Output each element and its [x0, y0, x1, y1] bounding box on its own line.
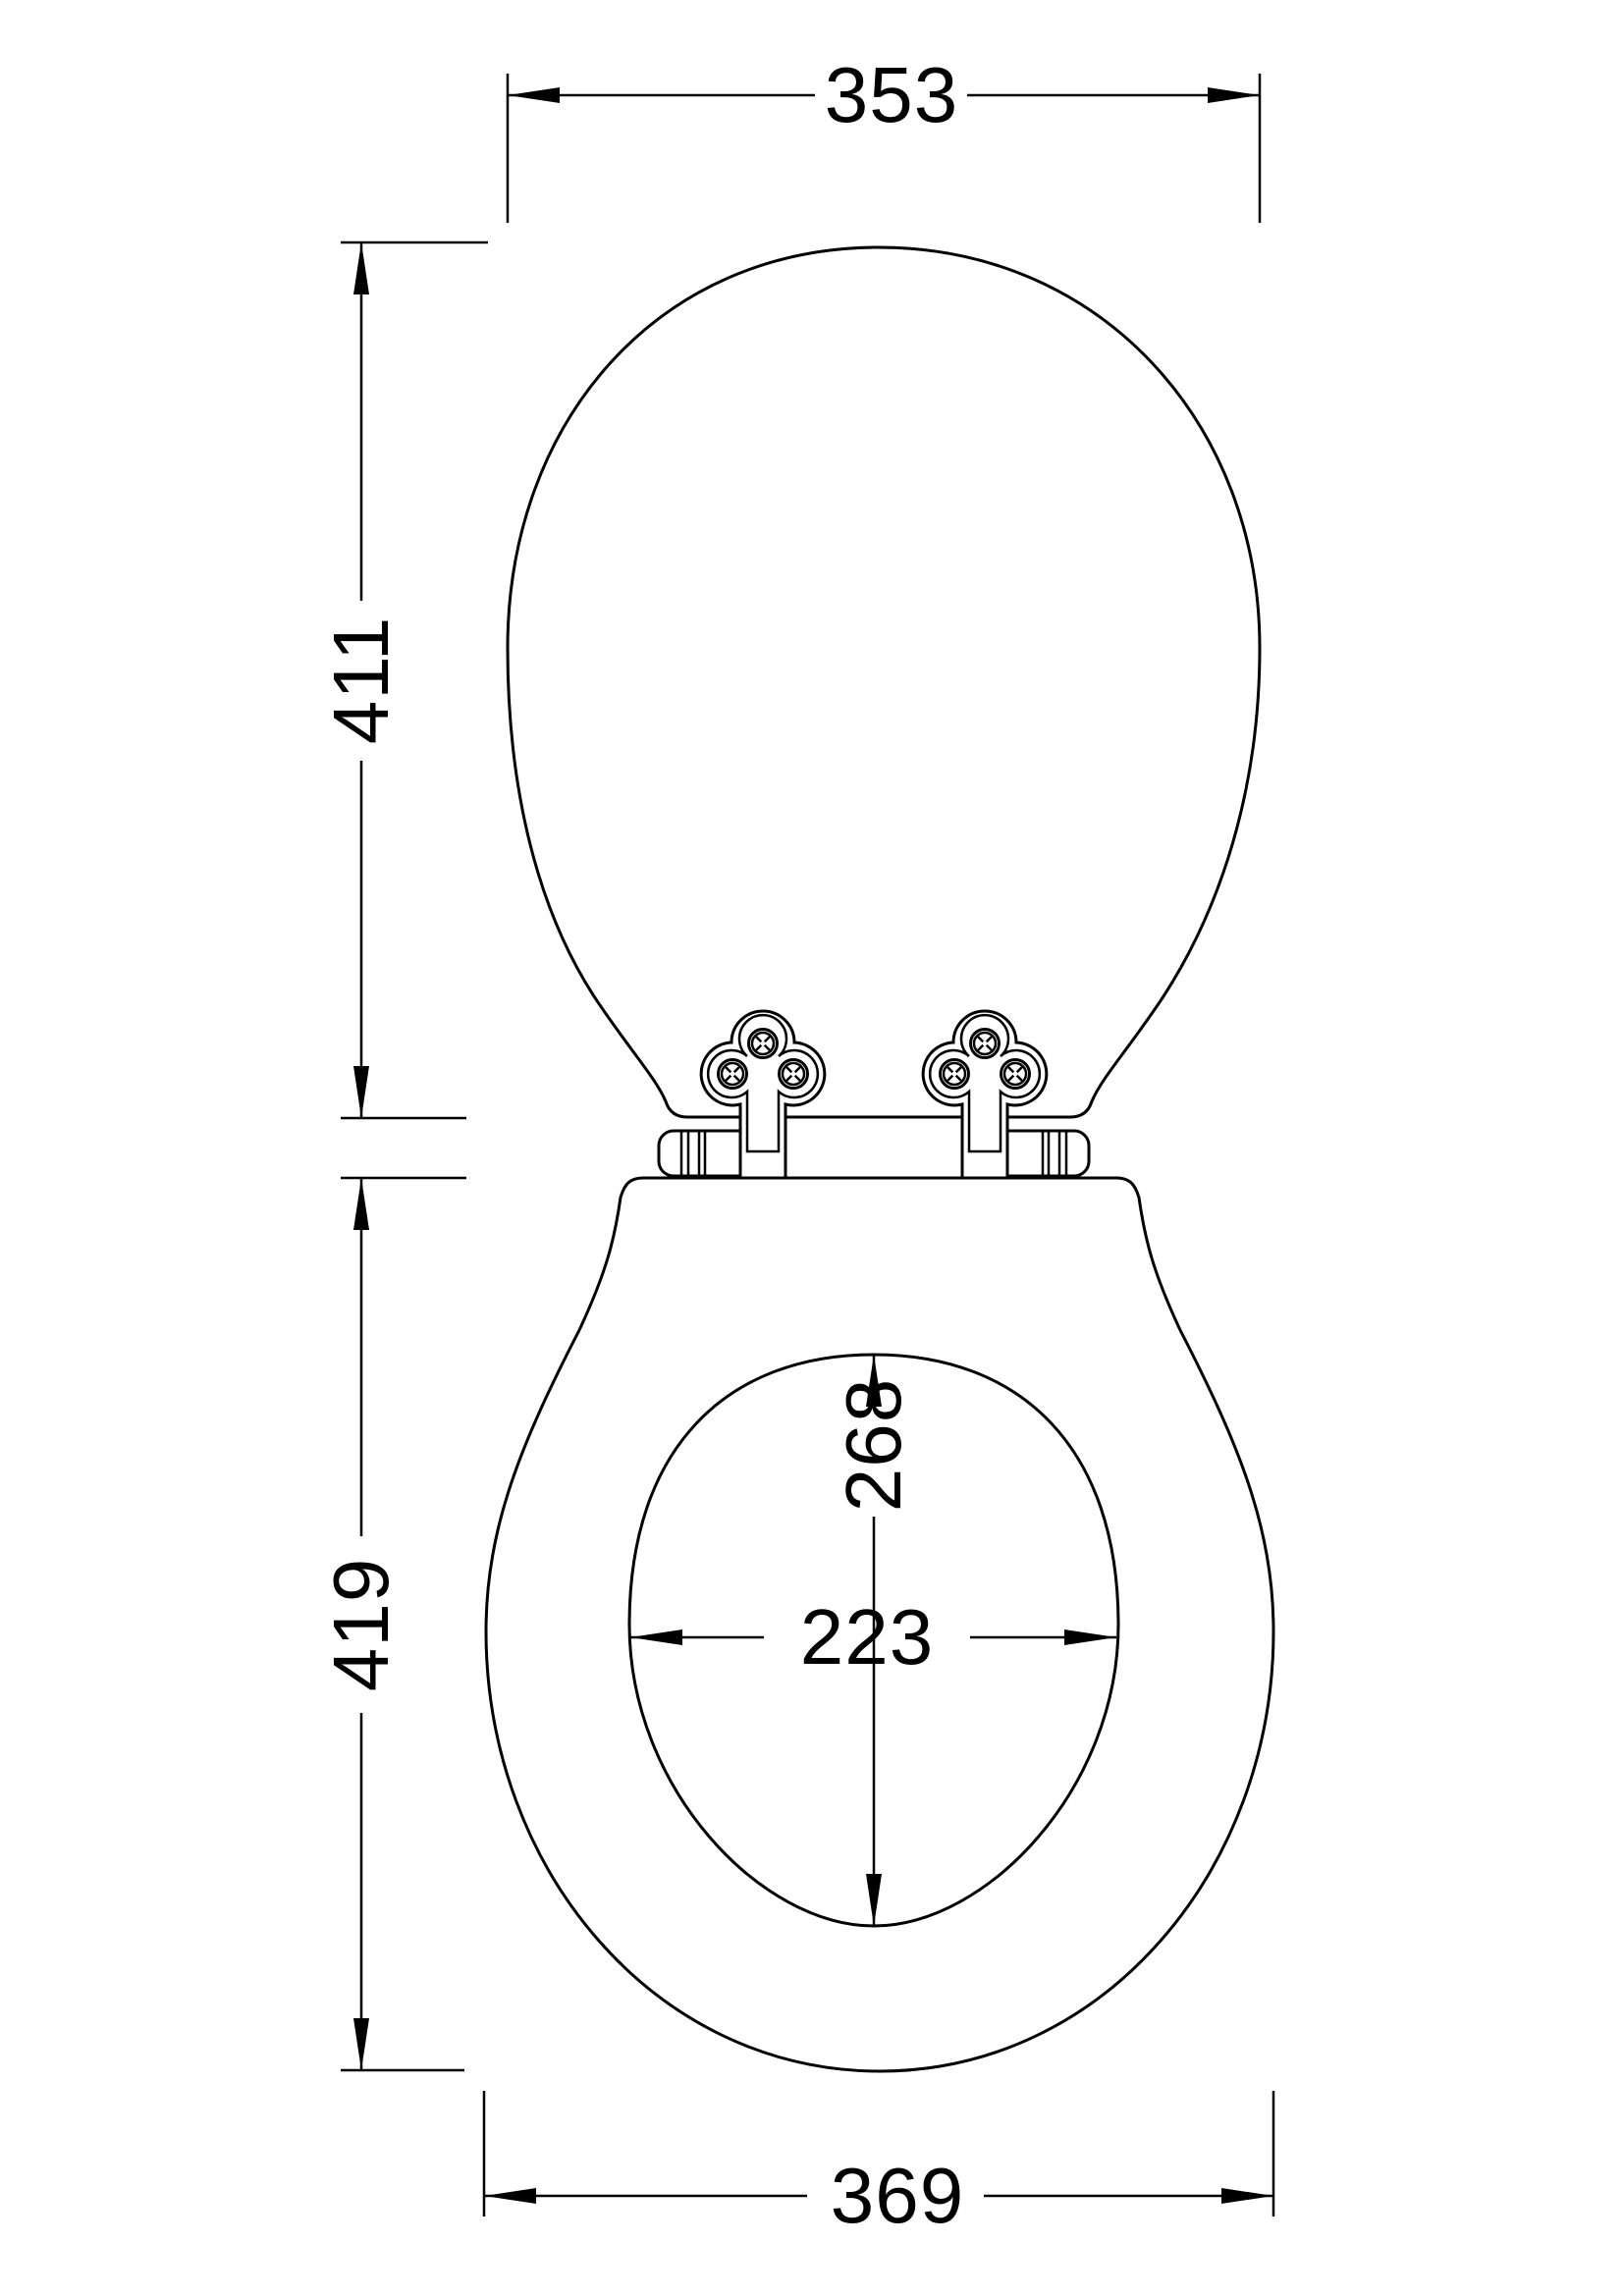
- dimension-label-seat-width: 369: [831, 2152, 964, 2239]
- arrowhead-up: [353, 242, 369, 294]
- arrowhead-down: [353, 1066, 369, 1118]
- dimension-seat-length: 419: [317, 1178, 466, 2070]
- dimension-label-opening-width: 223: [800, 1593, 934, 1681]
- technical-drawing-canvas: 353 411 419 268 223: [0, 0, 1623, 2296]
- arrowhead-left: [484, 2188, 536, 2204]
- drawing-page: 353 411 419 268 223: [0, 0, 1623, 2296]
- dimension-lid-width: 353: [508, 51, 1260, 223]
- dimension-seat-width: 369: [484, 2091, 1273, 2239]
- lid: [508, 247, 1260, 1117]
- arrowhead-down: [353, 2018, 369, 2070]
- dimension-label-lid-length: 411: [317, 616, 405, 745]
- dimension-lid-length: 411: [317, 242, 488, 1118]
- dimension-label-opening-length: 268: [830, 1378, 917, 1512]
- arrowhead-right: [1221, 2188, 1273, 2204]
- arrowhead-left: [508, 87, 560, 103]
- dimension-label-lid-width: 353: [825, 51, 958, 138]
- dimension-label-seat-length: 419: [317, 1558, 405, 1691]
- lid-outline: [508, 247, 1260, 1117]
- arrowhead-right: [1208, 87, 1260, 103]
- arrowhead-up: [353, 1178, 369, 1230]
